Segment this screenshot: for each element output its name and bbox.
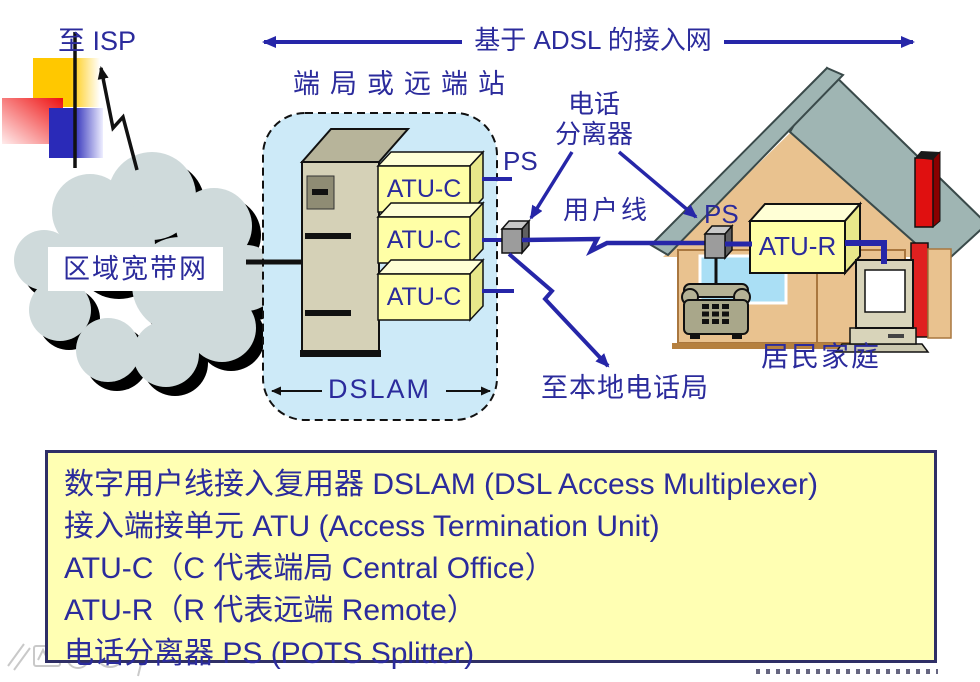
phone-splitter-line1: 电话 [552,89,636,119]
subscriber-line-label: 用户线 [563,196,650,225]
to-phone-office-arrow [509,254,608,366]
regional-broadband-label: 区域宽带网 [48,247,223,291]
atu-c-label-1: ATU-C [378,176,470,204]
clipped-footer-text [756,669,938,674]
adsl-span-title: 基于 ADSL 的接入网 [462,26,724,55]
definition-line: ATU-C（C 代表端局 Central Office） [64,543,555,587]
to-isp-arrow [101,68,137,170]
definition-line: 数字用户线接入复用器 DSLAM (DSL Access Multiplexer… [64,459,818,503]
dslam-label: DSLAM [328,375,431,405]
ps-label-co: PS [503,147,538,176]
central-office-label: 端局或远端站 [293,70,515,100]
to-local-office-label: 至本地电话局 [541,374,709,404]
definitions-box: 数字用户线接入复用器 DSLAM (DSL Access Multiplexer… [45,450,937,663]
slide-canvas: 至 ISP 基于 ADSL 的接入网 端局或远端站 电话 分离器 PS PS 用… [0,0,980,682]
atu-c-label-2: ATU-C [378,227,470,255]
definition-line: 电话分离器 PS (POTS Splitter) [64,628,474,672]
definition-line: ATU-R（R 代表远端 Remote） [64,585,477,629]
phone-splitter-label: 电话 分离器 [552,89,636,149]
atu-c-label-3: ATU-C [378,284,470,312]
atu-r-label: ATU-R [750,232,845,261]
to-isp-label: 至 ISP [58,27,136,57]
ps-label-home: PS [704,200,739,229]
telephone-icon [682,284,750,339]
definition-line: 接入端接单元 ATU (Access Termination Unit) [64,501,660,545]
splitter-cube-co [502,221,529,253]
residence-label: 居民家庭 [761,342,881,373]
phone-splitter-line2: 分离器 [552,119,636,149]
chimney-icon [933,152,940,227]
